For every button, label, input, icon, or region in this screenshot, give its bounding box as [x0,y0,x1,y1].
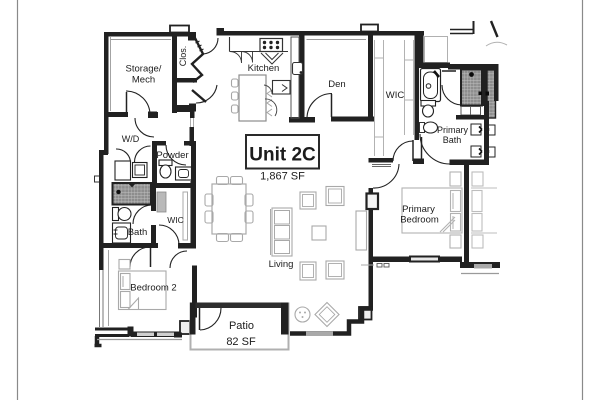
svg-text:Unit 2C: Unit 2C [249,145,316,166]
svg-text:Bath: Bath [128,227,148,238]
svg-text:Patio: Patio [229,320,254,332]
svg-text:Clos.: Clos. [178,46,188,67]
svg-text:1,867 SF: 1,867 SF [260,171,305,183]
svg-text:WIC: WIC [167,215,184,225]
svg-text:Living: Living [269,259,294,270]
svg-text:Den: Den [328,79,345,90]
svg-text:WIC: WIC [386,90,405,101]
svg-text:Mech: Mech [132,75,155,86]
svg-text:82 SF: 82 SF [226,336,256,348]
svg-text:W/D: W/D [122,134,140,144]
svg-text:Bedroom: Bedroom [400,215,439,226]
svg-text:Bath: Bath [443,135,462,145]
svg-text:Powder: Powder [156,150,188,161]
svg-text:Primary: Primary [402,204,435,215]
svg-text:Storage/: Storage/ [126,64,162,75]
svg-text:Kitchen: Kitchen [248,63,280,74]
svg-text:Primary: Primary [437,125,468,135]
svg-text:Bedroom 2: Bedroom 2 [130,283,176,294]
